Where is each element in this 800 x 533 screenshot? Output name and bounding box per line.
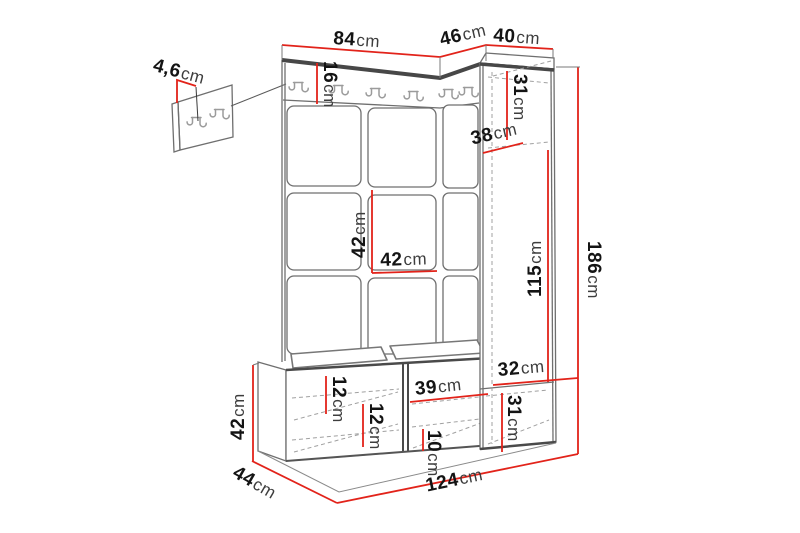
dim-value: 42 <box>380 249 403 271</box>
dim-label-cabinet-upper-height: 31cm <box>510 74 529 121</box>
dim-value: 40 <box>493 25 517 47</box>
dim-value: 10 <box>423 430 444 452</box>
dim-unit: cm <box>350 211 369 235</box>
coat-hook-icon <box>439 90 458 99</box>
dim-label-cabinet-width: 40cm <box>493 26 541 48</box>
dim-value: 32 <box>497 358 521 381</box>
dim-unit: cm <box>366 426 385 450</box>
dim-unit: cm <box>229 393 248 417</box>
coat-hook-icon <box>289 83 308 92</box>
dim-value: 12 <box>328 376 349 398</box>
dim-label-bench-upper-gap: 12cm <box>329 376 348 423</box>
dim-value: 12 <box>365 403 386 425</box>
dim-label-total-height: 186cm <box>584 241 603 299</box>
panel-tile <box>287 276 361 354</box>
dim-value: 39 <box>414 377 438 400</box>
dim-label-cabinet-base-width: 32cm <box>497 357 545 380</box>
dim-line-tile-width <box>372 271 437 273</box>
dim-label-hook-rail-height: 16cm <box>320 61 339 108</box>
dim-value: 31 <box>509 74 530 96</box>
coat-hook-icon <box>366 89 385 98</box>
dim-label-cabinet-main-height: 115cm <box>526 240 545 297</box>
dim-value: 31 <box>503 395 524 417</box>
dim-unit: cm <box>329 399 348 423</box>
dim-label-bench-lower-gap: 12cm <box>366 403 385 450</box>
furniture-dimension-diagram: 4,6cm 84cm 46cm 40cm 16cm 31cm 38cm 115c… <box>0 0 800 533</box>
dim-label-bench-height: 42cm <box>229 393 248 440</box>
dim-label-panel-tile-width: 42cm <box>380 249 427 270</box>
dim-value: 186 <box>583 241 604 274</box>
dim-value: 42 <box>228 418 249 440</box>
small-panel-front-face <box>178 85 233 150</box>
panel-tile <box>368 278 436 354</box>
panel-tile <box>368 108 436 187</box>
small-wall-panel <box>172 84 286 152</box>
dim-label-cabinet-base-height: 31cm <box>504 395 523 442</box>
dim-unit: cm <box>424 453 443 477</box>
dim-label-bench-right-height: 10cm <box>424 430 443 477</box>
panel-thickness-pointer <box>196 87 198 121</box>
dim-unit: cm <box>403 249 427 269</box>
bench-side-face <box>258 362 286 461</box>
dim-unit: cm <box>584 275 603 299</box>
dim-value: 84 <box>333 28 357 50</box>
panel-tile <box>287 106 361 186</box>
dim-unit: cm <box>510 97 529 121</box>
dim-label-top-left-width: 84cm <box>333 29 381 51</box>
dim-value: 16 <box>319 61 340 83</box>
dim-unit: cm <box>520 357 545 378</box>
dim-unit: cm <box>356 31 381 52</box>
coat-hook-icon <box>210 110 229 119</box>
dim-unit: cm <box>526 240 545 264</box>
dim-unit: cm <box>504 418 523 442</box>
panel-callout-line <box>231 84 286 106</box>
dim-unit: cm <box>320 84 339 108</box>
dim-unit: cm <box>437 375 463 396</box>
coat-hook-icon <box>404 92 423 101</box>
coat-hook-icon <box>187 118 206 127</box>
dim-value: 42 <box>349 236 370 258</box>
panel-left-edge <box>282 60 285 362</box>
dim-unit: cm <box>516 28 541 49</box>
panel-top-edge <box>282 60 486 78</box>
panel-tile <box>443 193 478 270</box>
dim-label-panel-tile-height: 42cm <box>350 211 369 258</box>
coat-hook-icon <box>459 88 478 97</box>
main-wall-panel <box>282 60 479 362</box>
dim-value: 115 <box>525 265 546 297</box>
